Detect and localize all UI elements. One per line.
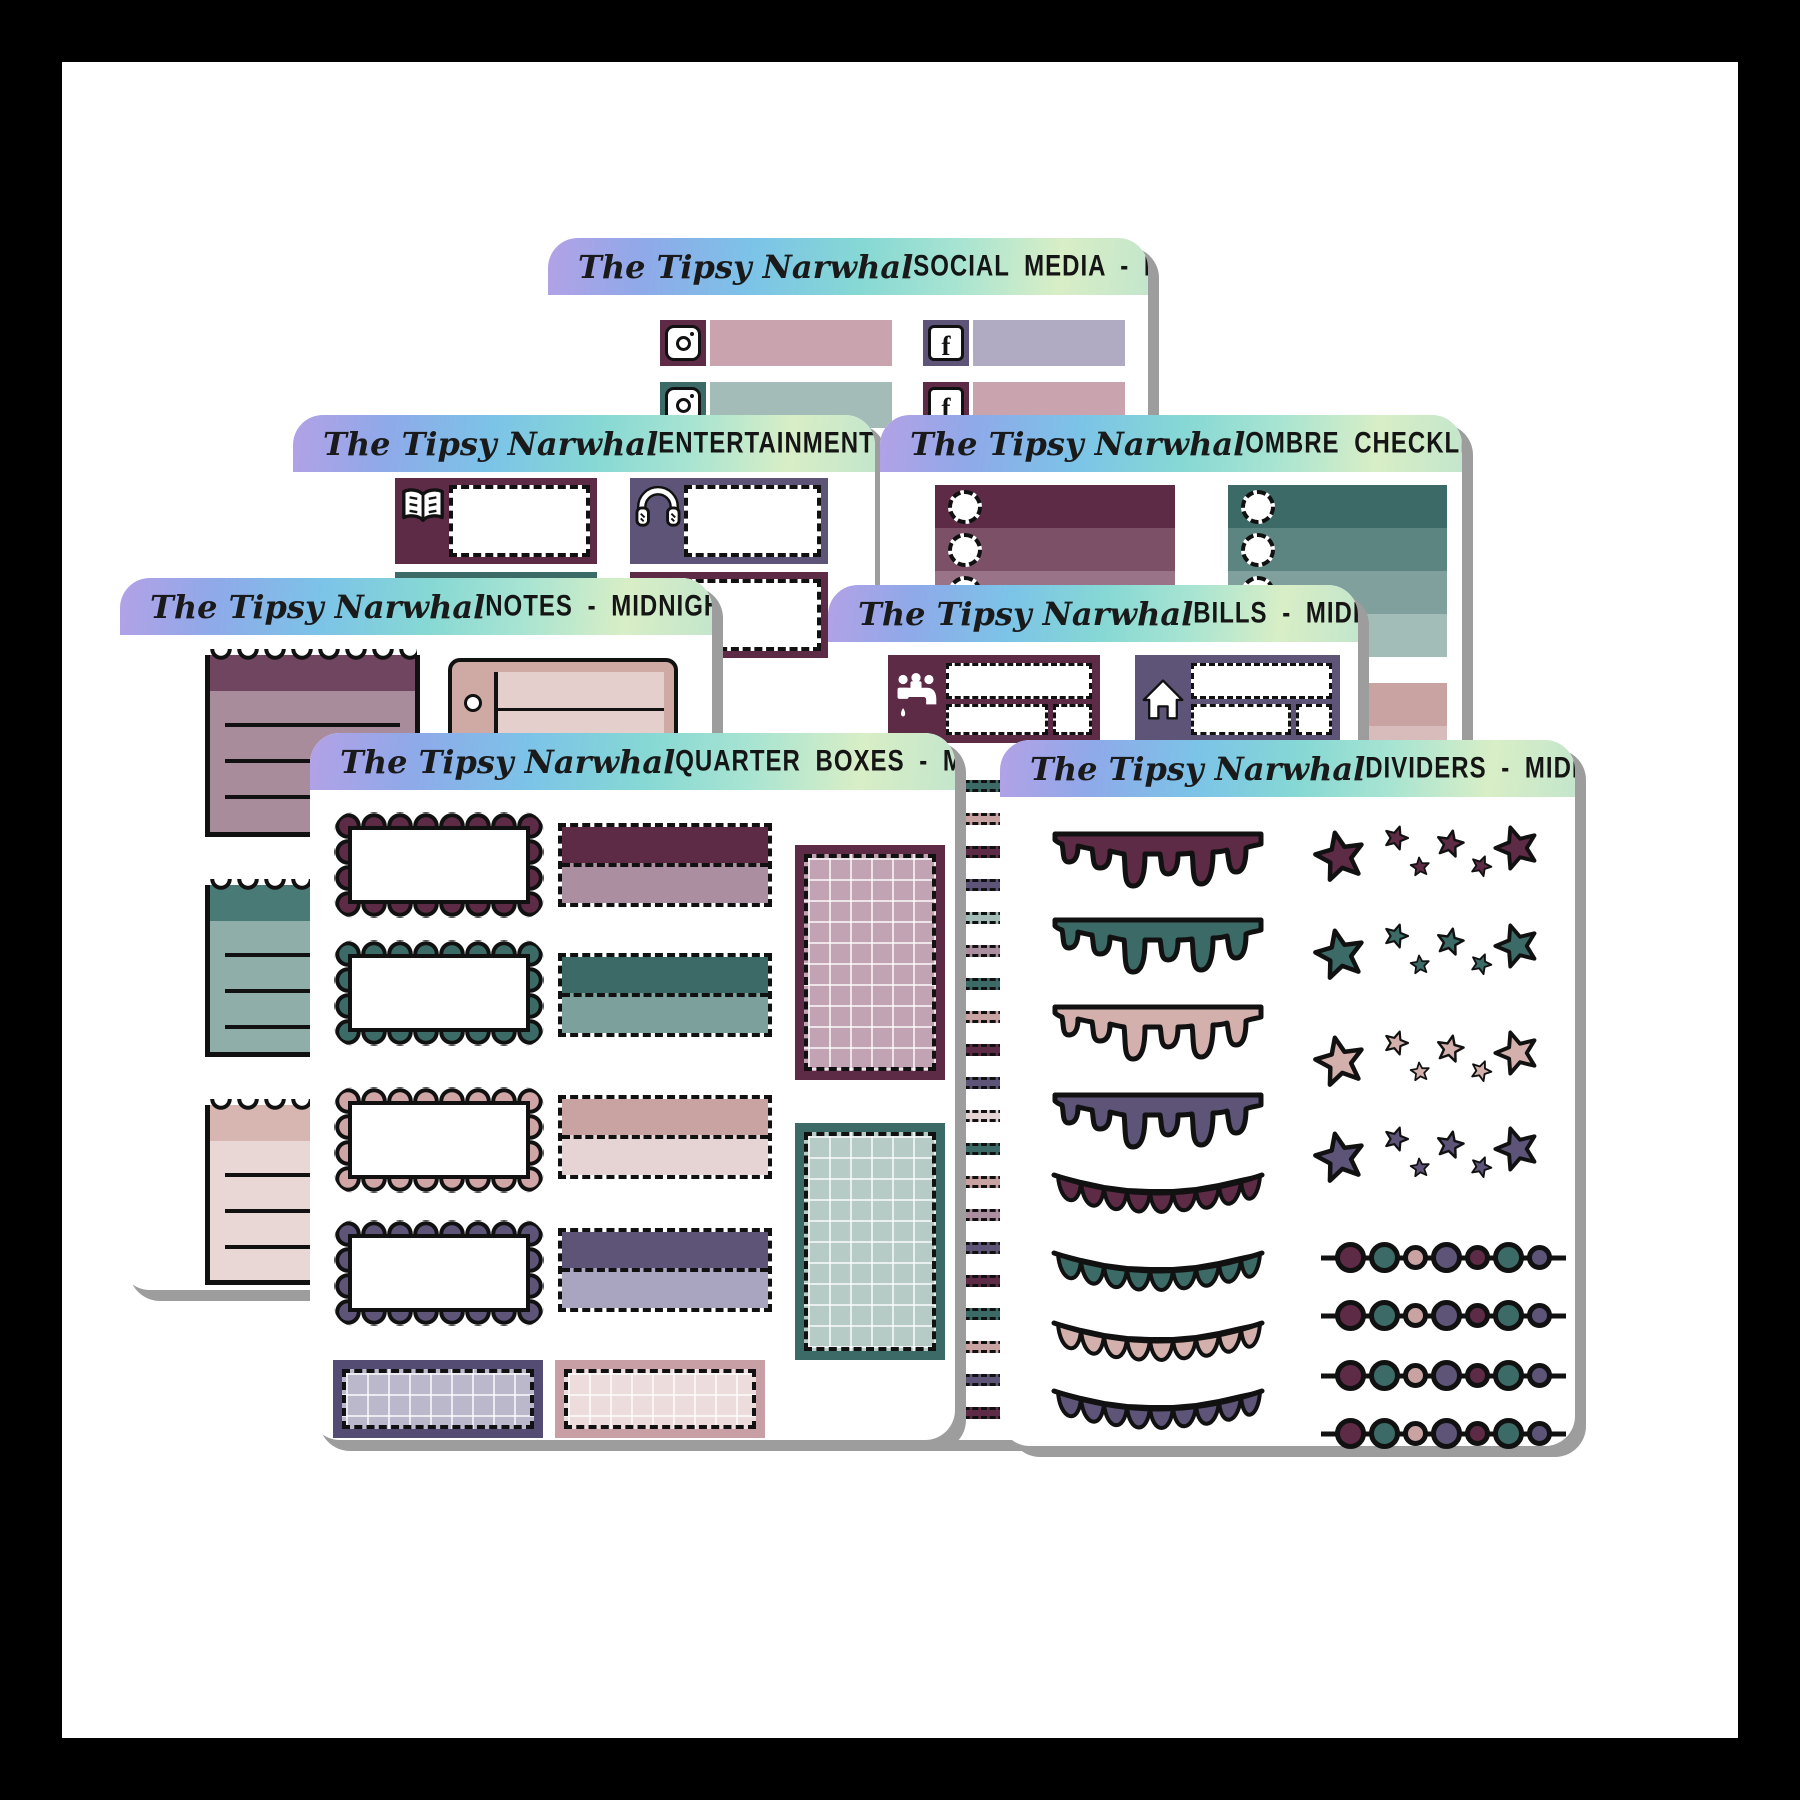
brand-logo: The Tipsy Narwhal bbox=[910, 425, 1245, 463]
social-label-bar bbox=[710, 320, 892, 366]
sheet-title: OMBRE CHECKLISTS - MIDNIGHT PEONIES bbox=[1245, 426, 1462, 460]
sheet-title: BILLS - MIDIGHT PEONIES bbox=[1193, 596, 1358, 630]
brand-logo: The Tipsy Narwhal bbox=[1030, 750, 1365, 788]
checklist-circle bbox=[948, 490, 982, 524]
instagram-tile bbox=[660, 320, 706, 366]
water-bill-box bbox=[888, 655, 1100, 743]
product-photo: The Tipsy Narwhal SOCIAL MEDIA - MIDNIGH… bbox=[0, 0, 1800, 1800]
house-bill-box bbox=[1135, 655, 1340, 743]
sheet-header: The Tipsy Narwhal BILLS - MIDIGHT PEONIE… bbox=[828, 585, 1358, 642]
social-label-bar bbox=[973, 320, 1125, 366]
sheet-title: QUARTER BOXES - MIDNIGHT PEONIES bbox=[675, 744, 955, 778]
bead-divider bbox=[1335, 1360, 1552, 1391]
faucet-icon bbox=[892, 671, 940, 723]
drip-divider-pink bbox=[1048, 1000, 1268, 1062]
sheet-quarter-boxes: The Tipsy Narwhal QUARTER BOXES - MIDNIG… bbox=[310, 733, 955, 1440]
scallop-box-purple bbox=[334, 1220, 544, 1326]
sheet-header: The Tipsy Narwhal NOTES - MIDNIGHT PEONI… bbox=[120, 578, 712, 635]
headphones-label-box bbox=[630, 478, 828, 564]
grid-box-tall-teal bbox=[795, 1123, 945, 1360]
grid-box-pink bbox=[555, 1360, 765, 1438]
sheet-title: NOTES - MIDNIGHT PEONIES bbox=[485, 589, 712, 623]
sheet-header: The Tipsy Narwhal SOCIAL MEDIA - MIDNIGH… bbox=[548, 238, 1148, 295]
bead-divider bbox=[1335, 1300, 1552, 1331]
brand-logo: The Tipsy Narwhal bbox=[578, 248, 913, 286]
star-divider-plum bbox=[1308, 817, 1548, 889]
checklist-circle bbox=[1241, 533, 1275, 567]
quarter-box-pink bbox=[558, 1095, 772, 1179]
sheet-title: ENTERTAINMENT - MIDNIGHT PEONIES bbox=[658, 426, 875, 460]
house-icon bbox=[1140, 675, 1186, 723]
book-icon bbox=[400, 484, 446, 528]
brand-logo: The Tipsy Narwhal bbox=[340, 743, 675, 781]
bunting-divider-purple bbox=[1048, 1381, 1268, 1447]
brand-logo: The Tipsy Narwhal bbox=[858, 595, 1193, 633]
scallop-box-pink bbox=[334, 1087, 544, 1193]
star-divider-pink bbox=[1308, 1022, 1548, 1094]
bunting-divider-plum bbox=[1048, 1165, 1268, 1231]
bead-divider bbox=[1335, 1242, 1552, 1273]
drip-divider-purple bbox=[1048, 1088, 1268, 1150]
sheet-title: SOCIAL MEDIA - MIDNIGHT PEONIES bbox=[913, 249, 1148, 283]
star-divider-teal bbox=[1308, 915, 1548, 987]
checklist-circle bbox=[1241, 490, 1275, 524]
grid-box-tall-plum bbox=[795, 845, 945, 1080]
quarter-box-teal bbox=[558, 953, 772, 1037]
bunting-divider-teal bbox=[1048, 1243, 1268, 1309]
facebook-tile: f bbox=[923, 320, 969, 366]
sheet-header: The Tipsy Narwhal DIVIDERS - MIDNIGHT PE… bbox=[1000, 740, 1575, 797]
bunting-divider-pink bbox=[1048, 1313, 1268, 1379]
bead-divider bbox=[1335, 1418, 1552, 1449]
scallop-box-plum bbox=[334, 812, 544, 918]
headphones-icon bbox=[635, 484, 681, 528]
sheet-header: The Tipsy Narwhal QUARTER BOXES - MIDNIG… bbox=[310, 733, 955, 790]
drip-divider-plum bbox=[1048, 827, 1268, 889]
checklist-circle bbox=[948, 533, 982, 567]
sheet-header: The Tipsy Narwhal OMBRE CHECKLISTS - MID… bbox=[880, 415, 1462, 472]
instagram-icon bbox=[665, 325, 701, 361]
facebook-icon: f bbox=[928, 325, 964, 361]
drip-divider-teal bbox=[1048, 913, 1268, 975]
punch-hole bbox=[464, 694, 482, 712]
brand-logo: The Tipsy Narwhal bbox=[150, 588, 485, 626]
sheet-title: DIVIDERS - MIDNIGHT PEONIES bbox=[1365, 751, 1575, 785]
sheet-dividers: The Tipsy Narwhal DIVIDERS - MIDNIGHT PE… bbox=[1000, 740, 1575, 1446]
sheet-header: The Tipsy Narwhal ENTERTAINMENT - MIDNIG… bbox=[293, 415, 875, 472]
quarter-box-plum bbox=[558, 823, 772, 907]
scallop-box-teal bbox=[334, 940, 544, 1046]
star-divider-purple bbox=[1308, 1118, 1548, 1190]
brand-logo: The Tipsy Narwhal bbox=[323, 425, 658, 463]
grid-box-lavender bbox=[333, 1360, 543, 1438]
book-label-box bbox=[395, 478, 597, 564]
quarter-box-purple bbox=[558, 1228, 772, 1312]
